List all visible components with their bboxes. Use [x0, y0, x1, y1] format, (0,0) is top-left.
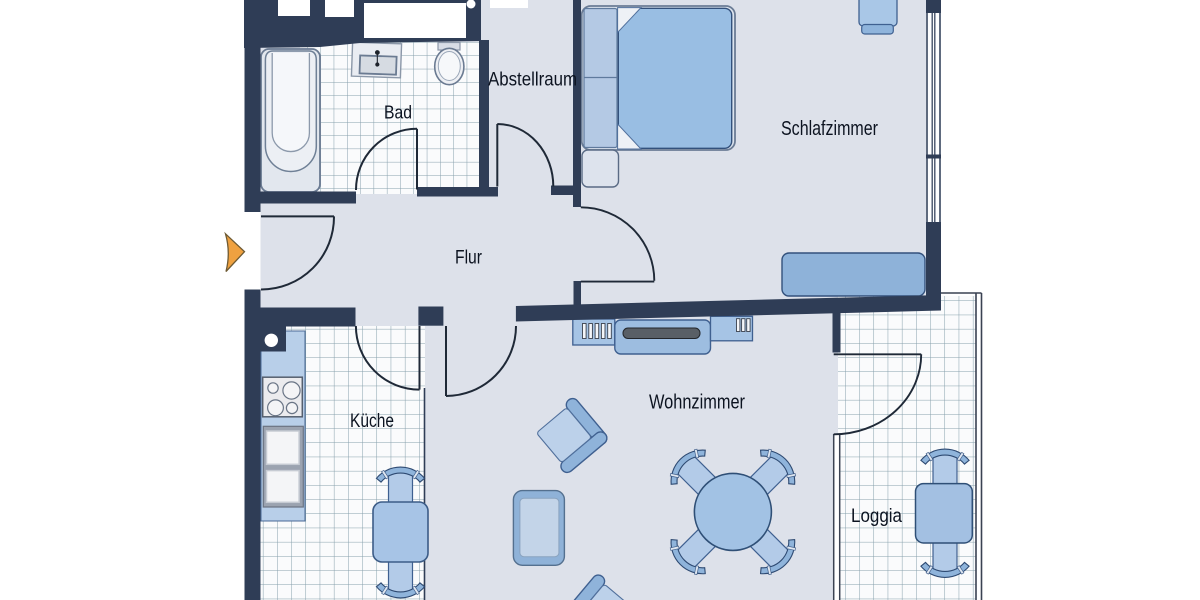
- svg-text:Küche: Küche: [350, 410, 394, 432]
- svg-text:Abstellraum: Abstellraum: [488, 69, 577, 91]
- svg-text:Bad: Bad: [384, 101, 412, 122]
- svg-text:Loggia: Loggia: [851, 505, 902, 527]
- svg-text:Wohnzimmer: Wohnzimmer: [649, 392, 745, 414]
- svg-text:Schlafzimmer: Schlafzimmer: [781, 118, 878, 140]
- svg-text:Flur: Flur: [455, 247, 482, 269]
